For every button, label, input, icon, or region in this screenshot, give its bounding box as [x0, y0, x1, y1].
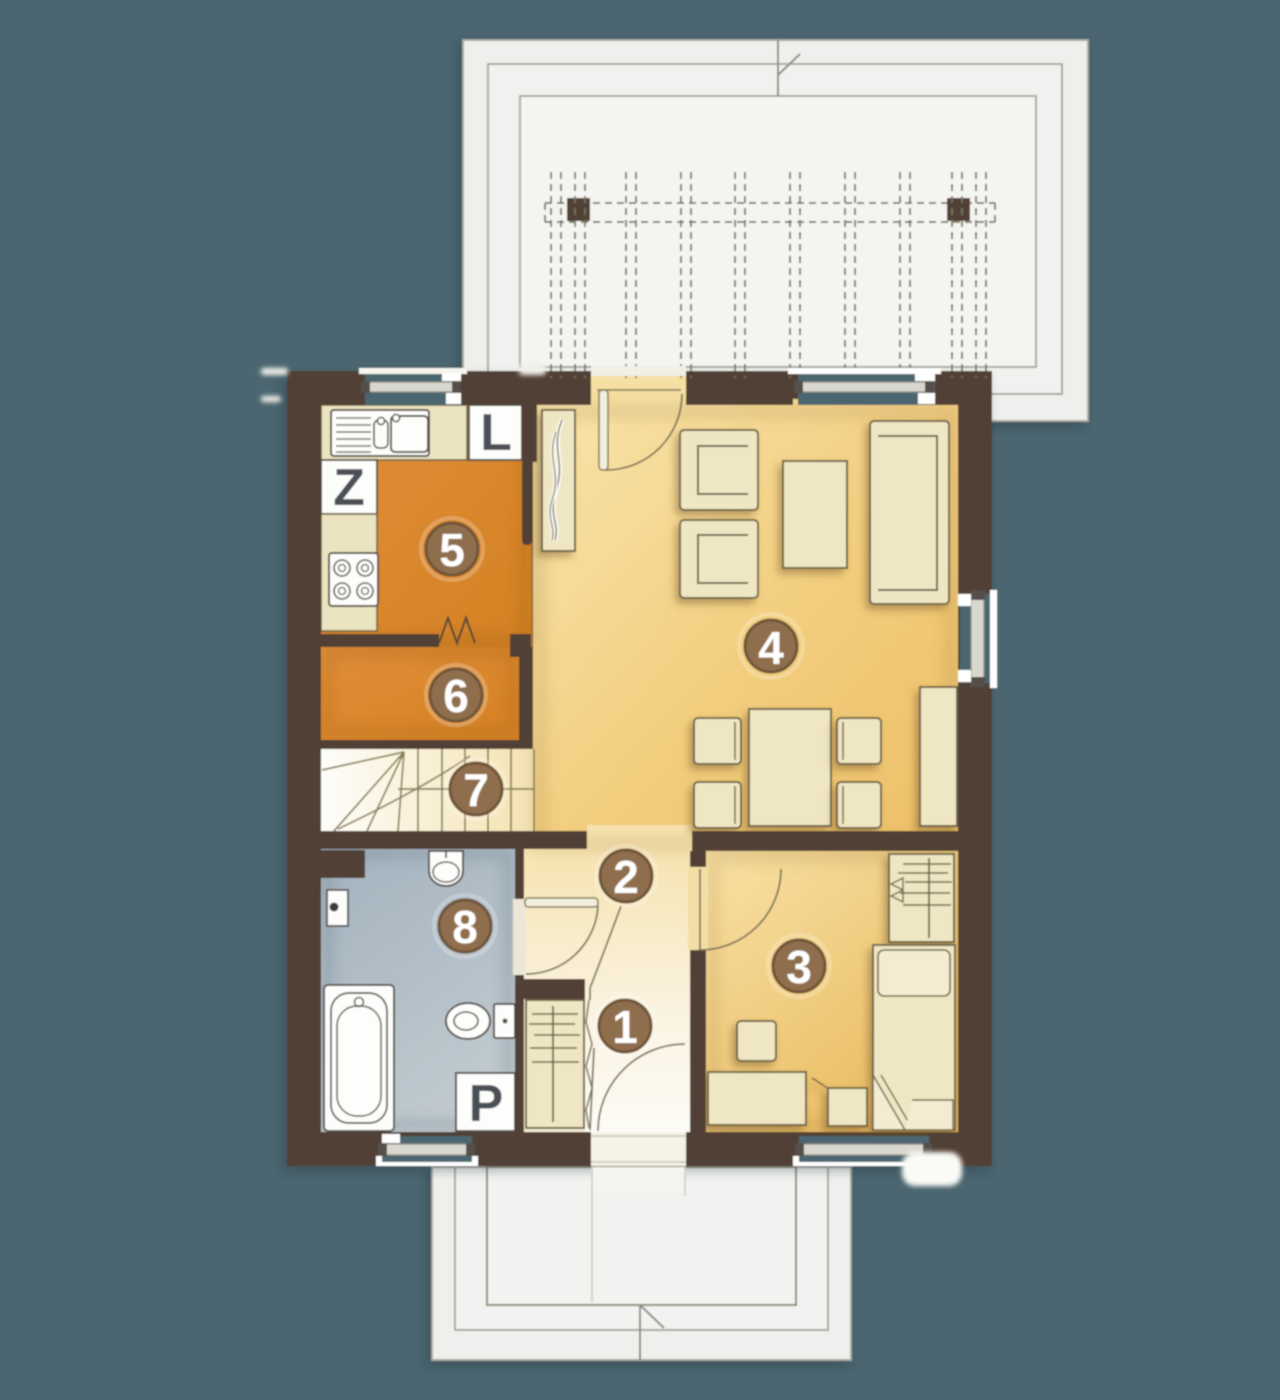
svg-text:P: P	[469, 1075, 504, 1133]
svg-text:8: 8	[452, 901, 478, 953]
svg-text:5: 5	[439, 524, 465, 576]
svg-text:4: 4	[758, 622, 784, 674]
svg-text:6: 6	[443, 670, 469, 722]
svg-text:Z: Z	[333, 459, 365, 517]
svg-text:1: 1	[612, 1001, 638, 1053]
svg-text:L: L	[480, 404, 512, 462]
svg-text:2: 2	[613, 851, 639, 903]
svg-text:3: 3	[786, 941, 812, 993]
svg-text:7: 7	[463, 764, 489, 816]
